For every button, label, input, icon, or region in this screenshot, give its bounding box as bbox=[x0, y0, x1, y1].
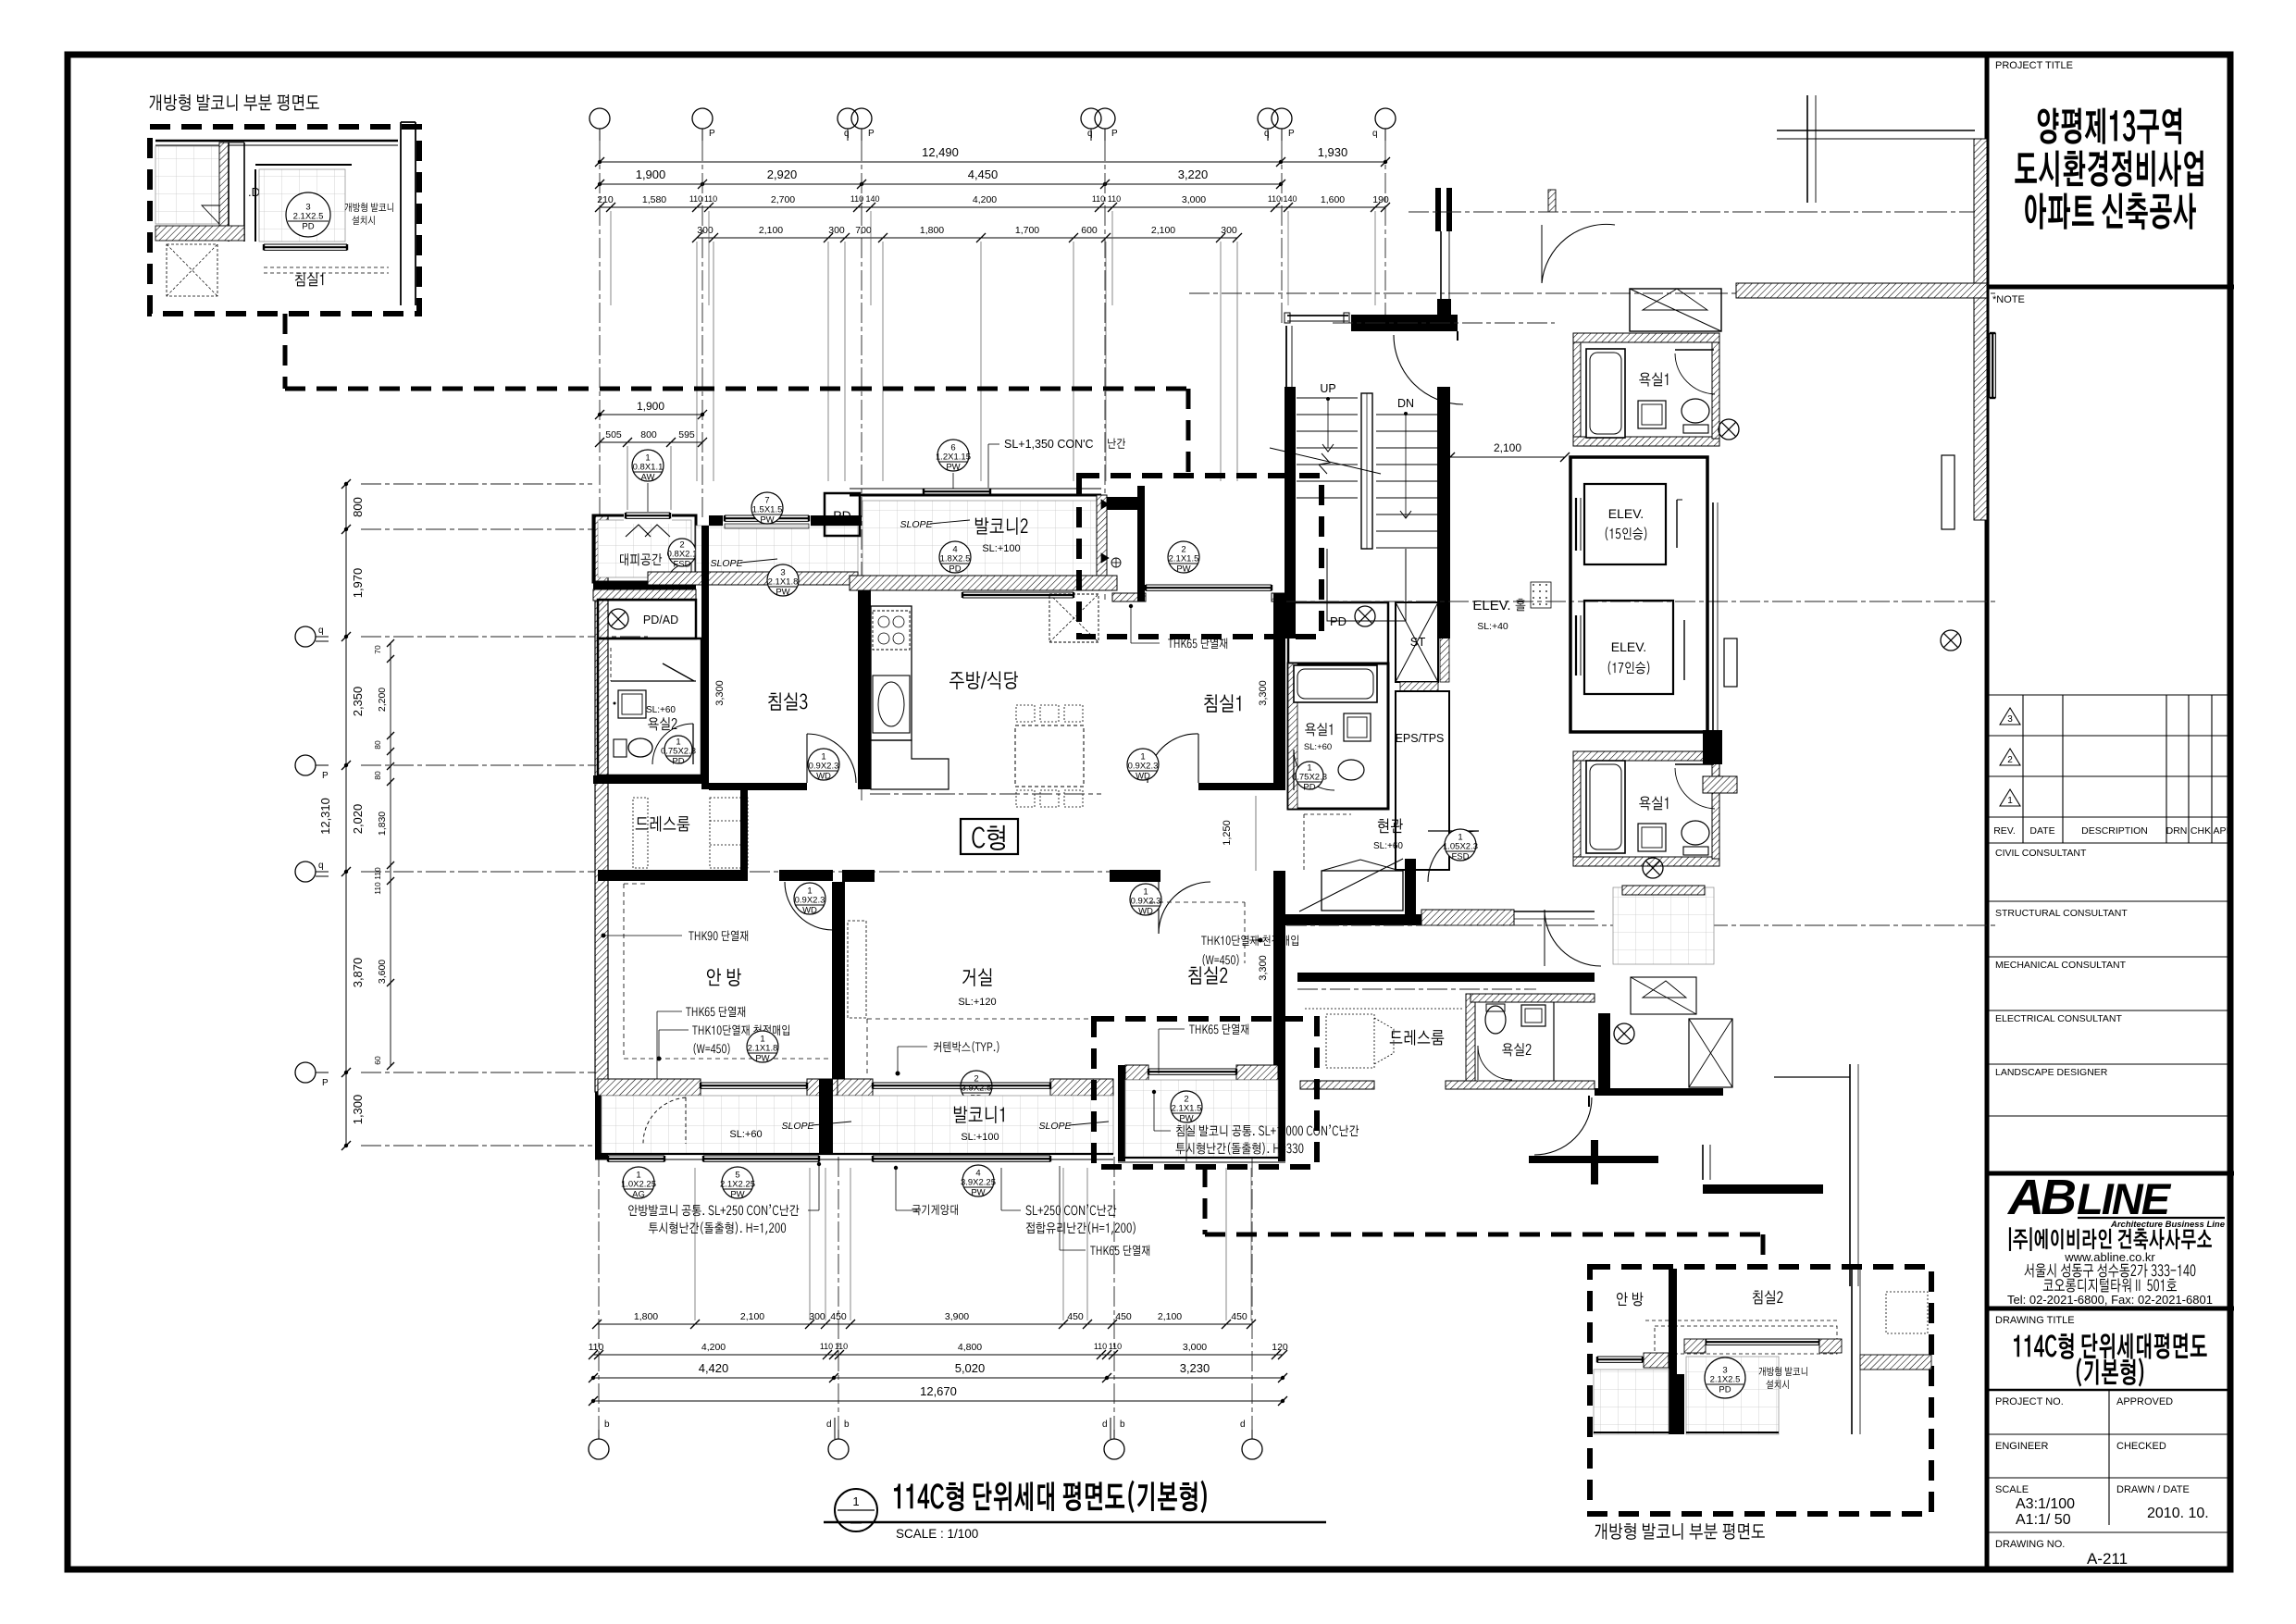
svg-text:0.9X2.3: 0.9X2.3 bbox=[1131, 897, 1161, 907]
svg-text:190: 190 bbox=[1372, 194, 1389, 205]
svg-text:SL:+120: SL:+120 bbox=[958, 997, 996, 1008]
svg-text:1,930: 1,930 bbox=[1318, 145, 1348, 159]
svg-text:595: 595 bbox=[678, 429, 695, 440]
svg-text:1,970: 1,970 bbox=[351, 568, 365, 599]
svg-text:SL:+100: SL:+100 bbox=[982, 543, 1020, 554]
svg-text:1,250: 1,250 bbox=[1222, 820, 1233, 846]
svg-text:1,800: 1,800 bbox=[920, 225, 944, 236]
svg-text:3,000: 3,000 bbox=[1182, 194, 1206, 205]
svg-text:AW: AW bbox=[641, 473, 655, 483]
svg-text:60: 60 bbox=[373, 1056, 382, 1065]
svg-text:.D: .D bbox=[248, 185, 260, 199]
svg-text:1,800: 1,800 bbox=[634, 1311, 658, 1322]
svg-text:FSD: FSD bbox=[1452, 852, 1470, 862]
svg-text:4,800: 4,800 bbox=[958, 1342, 982, 1353]
svg-text:1,830: 1,830 bbox=[377, 812, 388, 836]
svg-text:0.75X2.3: 0.75X2.3 bbox=[1292, 773, 1327, 783]
svg-text:0.9X2.3: 0.9X2.3 bbox=[795, 896, 825, 906]
svg-text:110: 110 bbox=[1094, 1342, 1107, 1351]
svg-text:300: 300 bbox=[697, 225, 714, 236]
svg-text:3,000: 3,000 bbox=[1183, 1342, 1207, 1353]
svg-text:ELEV.: ELEV. bbox=[1608, 506, 1644, 521]
svg-text:2.1X1.5: 2.1X1.5 bbox=[1169, 554, 1199, 564]
svg-text:450: 450 bbox=[1067, 1311, 1084, 1322]
svg-text:SLOPE: SLOPE bbox=[900, 519, 933, 530]
svg-text:12,670: 12,670 bbox=[920, 1384, 957, 1398]
svg-text:PD: PD bbox=[1303, 783, 1315, 793]
svg-text:ELEV.: ELEV. bbox=[1472, 598, 1510, 614]
svg-text:110: 110 bbox=[704, 194, 717, 204]
svg-text:P: P bbox=[1288, 129, 1295, 139]
svg-text:12,310: 12,310 bbox=[318, 798, 332, 835]
svg-text:SL:+60: SL:+60 bbox=[729, 1129, 762, 1140]
svg-text:110: 110 bbox=[1109, 1342, 1122, 1351]
svg-text:P: P bbox=[322, 1078, 329, 1088]
svg-text:SLOPE: SLOPE bbox=[1038, 1121, 1072, 1132]
svg-text:1: 1 bbox=[2007, 796, 2013, 806]
svg-text:PW: PW bbox=[776, 588, 789, 598]
svg-text:4,200: 4,200 bbox=[973, 194, 997, 205]
svg-text:SCALE: SCALE bbox=[1995, 1484, 2029, 1495]
svg-text:800: 800 bbox=[640, 429, 657, 440]
svg-text:P: P bbox=[709, 129, 715, 139]
svg-text:1.2X1.15: 1.2X1.15 bbox=[936, 452, 971, 463]
svg-text:WD: WD bbox=[1136, 772, 1150, 782]
svg-text:q: q bbox=[318, 861, 324, 871]
svg-text:110: 110 bbox=[689, 194, 702, 204]
svg-text:3,230: 3,230 bbox=[1180, 1361, 1210, 1375]
svg-text:q: q bbox=[1264, 129, 1270, 139]
svg-text:700: 700 bbox=[855, 225, 872, 236]
svg-text:Architecture Business Line: Architecture Business Line bbox=[2110, 1220, 2226, 1230]
svg-text:3,600: 3,600 bbox=[377, 960, 388, 984]
svg-text:PW: PW bbox=[730, 1190, 744, 1200]
svg-text:www.abline.co.kr: www.abline.co.kr bbox=[2064, 1250, 2155, 1264]
svg-text:2,200: 2,200 bbox=[377, 688, 388, 712]
svg-text:3: 3 bbox=[2007, 714, 2013, 725]
svg-text:A-211: A-211 bbox=[2087, 1550, 2128, 1568]
svg-text:PW: PW bbox=[946, 463, 960, 473]
svg-text:d: d bbox=[1240, 1419, 1246, 1430]
svg-text:PROJECT TITLE: PROJECT TITLE bbox=[1995, 60, 2073, 71]
svg-text:SL:+60: SL:+60 bbox=[1304, 742, 1332, 752]
svg-text:1: 1 bbox=[852, 1494, 859, 1508]
svg-text:2,100: 2,100 bbox=[740, 1311, 764, 1322]
svg-text:70: 70 bbox=[373, 645, 382, 654]
svg-text:SL:+40: SL:+40 bbox=[1477, 621, 1508, 632]
svg-text:2.1X1.8: 2.1X1.8 bbox=[748, 1044, 778, 1054]
svg-text:ELECTRICAL CONSULTANT: ELECTRICAL CONSULTANT bbox=[1995, 1013, 2122, 1024]
svg-text:APP: APP bbox=[2213, 825, 2232, 837]
svg-text:5,020: 5,020 bbox=[955, 1361, 986, 1375]
svg-text:WD: WD bbox=[816, 772, 831, 782]
svg-text:0.8X2.1: 0.8X2.1 bbox=[667, 550, 698, 560]
svg-text:0.9X2.3: 0.9X2.3 bbox=[1128, 762, 1159, 772]
svg-text:2,920: 2,920 bbox=[767, 167, 798, 181]
svg-text:110: 110 bbox=[373, 867, 382, 880]
svg-text:2,100: 2,100 bbox=[759, 225, 783, 236]
svg-text:AB: AB bbox=[2006, 1170, 2075, 1225]
svg-text:2,700: 2,700 bbox=[771, 194, 795, 205]
svg-text:UP: UP bbox=[1320, 382, 1335, 395]
svg-text:450: 450 bbox=[1231, 1311, 1247, 1322]
svg-text:2010. 10.: 2010. 10. bbox=[2147, 1506, 2209, 1521]
svg-text:Tel: 02-2021-6800, Fax: 02-202: Tel: 02-2021-6800, Fax: 02-2021-6801 bbox=[2007, 1293, 2213, 1307]
svg-text:1.8X2.5: 1.8X2.5 bbox=[940, 554, 971, 564]
svg-text:ELEV.: ELEV. bbox=[1611, 639, 1646, 654]
svg-text:P: P bbox=[1111, 129, 1118, 139]
svg-text:DRAWING NO.: DRAWING NO. bbox=[1995, 1539, 2065, 1550]
svg-text:4,450: 4,450 bbox=[968, 167, 999, 181]
svg-text:b: b bbox=[604, 1419, 610, 1430]
svg-text:WD: WD bbox=[802, 906, 817, 916]
svg-text:b: b bbox=[1120, 1419, 1125, 1430]
svg-text:1,700: 1,700 bbox=[1015, 225, 1039, 236]
svg-text:3,300: 3,300 bbox=[1258, 680, 1269, 706]
svg-text:0.9X2.3: 0.9X2.3 bbox=[809, 762, 839, 772]
svg-text:ENGINEER: ENGINEER bbox=[1995, 1441, 2049, 1452]
svg-text:2.1X2.5: 2.1X2.5 bbox=[1710, 1375, 1741, 1385]
svg-text:d: d bbox=[826, 1419, 832, 1430]
svg-text:1,900: 1,900 bbox=[636, 167, 666, 181]
svg-text:PD: PD bbox=[833, 508, 850, 523]
svg-text:CHECKED: CHECKED bbox=[2116, 1441, 2166, 1452]
svg-text:DN: DN bbox=[1397, 397, 1414, 410]
svg-text:1,580: 1,580 bbox=[642, 194, 666, 205]
svg-text:FSD: FSD bbox=[674, 560, 691, 570]
svg-text:PD: PD bbox=[672, 757, 684, 767]
svg-text:600: 600 bbox=[1081, 225, 1098, 236]
svg-text:12,490: 12,490 bbox=[922, 145, 959, 159]
svg-text:2.1X2.5: 2.1X2.5 bbox=[293, 212, 324, 222]
svg-text:A3:1/100: A3:1/100 bbox=[2016, 1496, 2075, 1512]
svg-text:SL+1,350 CON'C: SL+1,350 CON'C bbox=[1004, 438, 1094, 451]
svg-text:2: 2 bbox=[2007, 755, 2013, 765]
svg-text:PD: PD bbox=[949, 564, 961, 575]
svg-text:b: b bbox=[844, 1419, 850, 1430]
svg-text:300: 300 bbox=[828, 225, 845, 236]
svg-text:REV.: REV. bbox=[1993, 825, 2016, 837]
svg-text:SLOPE: SLOPE bbox=[710, 558, 743, 569]
svg-text:SLOPE: SLOPE bbox=[781, 1121, 814, 1132]
svg-text:110: 110 bbox=[1092, 194, 1105, 204]
svg-text:3,220: 3,220 bbox=[1178, 167, 1209, 181]
svg-text:2.1X1.5: 2.1X1.5 bbox=[1172, 1104, 1202, 1114]
svg-text:ST: ST bbox=[1410, 635, 1426, 649]
svg-text:AG: AG bbox=[632, 1190, 645, 1200]
svg-text:1.5X1.5: 1.5X1.5 bbox=[752, 505, 783, 515]
svg-text:2,100: 2,100 bbox=[1494, 441, 1521, 454]
svg-text:3,300: 3,300 bbox=[714, 680, 726, 706]
svg-text:A1:1/ 50: A1:1/ 50 bbox=[2016, 1512, 2071, 1528]
svg-text:DATE: DATE bbox=[2029, 825, 2054, 837]
svg-text:300: 300 bbox=[809, 1311, 825, 1322]
svg-text:2.1X2.25: 2.1X2.25 bbox=[720, 1180, 755, 1190]
svg-text:PROJECT NO.: PROJECT NO. bbox=[1995, 1396, 2064, 1407]
svg-text:120: 120 bbox=[1272, 1342, 1288, 1353]
svg-text:SCALE : 1/100: SCALE : 1/100 bbox=[896, 1527, 978, 1541]
svg-text:CHK: CHK bbox=[2191, 825, 2211, 837]
svg-text:3.9X2.25: 3.9X2.25 bbox=[961, 1178, 996, 1188]
svg-text:PW: PW bbox=[1179, 1114, 1193, 1124]
svg-text:MECHANICAL CONSULTANT: MECHANICAL CONSULTANT bbox=[1995, 960, 2127, 971]
svg-text:0.75X2.3: 0.75X2.3 bbox=[661, 747, 696, 757]
svg-text:2.1X1.8: 2.1X1.8 bbox=[768, 577, 799, 588]
svg-text:1,900: 1,900 bbox=[637, 400, 664, 413]
svg-text:110: 110 bbox=[835, 1342, 848, 1351]
svg-text:APPROVED: APPROVED bbox=[2116, 1396, 2173, 1407]
svg-text:d: d bbox=[1102, 1419, 1108, 1430]
svg-text:PD: PD bbox=[302, 222, 314, 232]
svg-text:300: 300 bbox=[1221, 225, 1237, 236]
svg-text:110: 110 bbox=[1108, 194, 1121, 204]
svg-text:*NOTE: *NOTE bbox=[1992, 294, 2025, 305]
svg-text:2,020: 2,020 bbox=[351, 804, 365, 835]
svg-text:1.0X2.25: 1.0X2.25 bbox=[621, 1180, 656, 1190]
svg-text:PW: PW bbox=[971, 1188, 985, 1198]
svg-text:q: q bbox=[1087, 129, 1093, 139]
svg-text:140: 140 bbox=[865, 194, 879, 204]
svg-text:450: 450 bbox=[1115, 1311, 1132, 1322]
svg-text:1,600: 1,600 bbox=[1321, 194, 1345, 205]
svg-text:P: P bbox=[868, 129, 875, 139]
svg-text:PD: PD bbox=[1719, 1385, 1731, 1395]
svg-text:PW: PW bbox=[760, 515, 774, 526]
svg-text:DRAWN / DATE: DRAWN / DATE bbox=[2116, 1484, 2190, 1495]
svg-text:110: 110 bbox=[589, 1342, 604, 1353]
svg-text:2,350: 2,350 bbox=[351, 687, 365, 717]
svg-text:2,100: 2,100 bbox=[1151, 225, 1175, 236]
svg-text:q: q bbox=[1372, 129, 1378, 139]
svg-text:DRN: DRN bbox=[2166, 825, 2188, 837]
svg-text:2,100: 2,100 bbox=[1158, 1311, 1182, 1322]
svg-text:q: q bbox=[844, 129, 850, 139]
svg-text:0.8X1.1: 0.8X1.1 bbox=[633, 463, 664, 473]
svg-text:3,870: 3,870 bbox=[351, 958, 365, 988]
svg-text:110: 110 bbox=[373, 882, 382, 895]
svg-text:3,300: 3,300 bbox=[1258, 955, 1269, 981]
svg-text:505: 505 bbox=[605, 429, 622, 440]
svg-text:80: 80 bbox=[373, 771, 382, 780]
svg-text:1,300: 1,300 bbox=[351, 1095, 365, 1125]
svg-text:110: 110 bbox=[820, 1342, 833, 1351]
svg-text:140: 140 bbox=[1283, 194, 1297, 204]
svg-text:1.05X2.3: 1.05X2.3 bbox=[1443, 842, 1478, 852]
svg-text:4,420: 4,420 bbox=[699, 1361, 729, 1375]
svg-text:PD/AD: PD/AD bbox=[643, 614, 678, 626]
svg-text:4,200: 4,200 bbox=[701, 1342, 726, 1353]
svg-text:3,900: 3,900 bbox=[945, 1311, 969, 1322]
svg-text:STRUCTURAL CONSULTANT: STRUCTURAL CONSULTANT bbox=[1995, 908, 2128, 919]
svg-text:800: 800 bbox=[351, 497, 365, 517]
svg-text:LINE: LINE bbox=[2077, 1174, 2172, 1223]
svg-text:DRAWING TITLE: DRAWING TITLE bbox=[1995, 1315, 2075, 1326]
svg-text:SL:+60: SL:+60 bbox=[1373, 841, 1403, 851]
svg-text:q: q bbox=[318, 626, 324, 636]
svg-text:EPS/TPS: EPS/TPS bbox=[1396, 732, 1445, 745]
svg-text:PW: PW bbox=[755, 1054, 769, 1064]
svg-text:80: 80 bbox=[373, 740, 382, 750]
svg-text:SL:+60: SL:+60 bbox=[646, 705, 676, 715]
svg-text:DESCRIPTION: DESCRIPTION bbox=[2081, 825, 2148, 837]
svg-text:LANDSCAPE DESIGNER: LANDSCAPE DESIGNER bbox=[1995, 1067, 2108, 1078]
svg-text:P: P bbox=[322, 771, 329, 781]
svg-text:CIVIL CONSULTANT: CIVIL CONSULTANT bbox=[1995, 848, 2087, 859]
svg-text:110: 110 bbox=[1268, 194, 1281, 204]
svg-text:PW: PW bbox=[1176, 564, 1190, 575]
svg-text:SL:+100: SL:+100 bbox=[961, 1132, 999, 1143]
svg-text:WD: WD bbox=[1138, 907, 1153, 917]
